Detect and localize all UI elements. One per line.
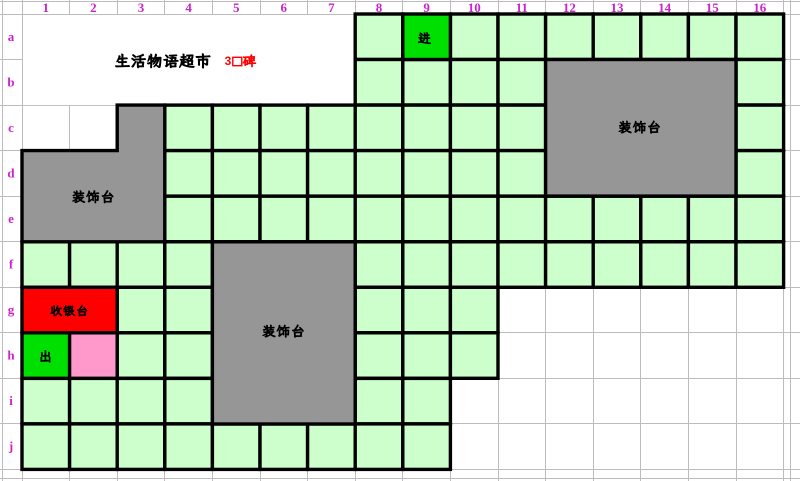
svg-text:12: 12 (563, 0, 576, 15)
svg-text:13: 13 (611, 0, 625, 15)
svg-text:4: 4 (185, 0, 192, 15)
svg-text:f: f (9, 257, 14, 272)
svg-text:3: 3 (225, 54, 232, 68)
svg-text:1: 1 (43, 0, 50, 15)
svg-text:c: c (8, 120, 14, 135)
svg-text:g: g (8, 302, 15, 317)
svg-text:d: d (7, 165, 15, 180)
svg-text:11: 11 (516, 0, 528, 15)
svg-text:h: h (7, 348, 15, 363)
svg-text:a: a (8, 29, 15, 44)
svg-text:9: 9 (423, 0, 430, 15)
svg-text:7: 7 (328, 0, 335, 15)
svg-text:i: i (9, 393, 13, 408)
svg-text:3: 3 (138, 0, 145, 15)
svg-text:10: 10 (468, 0, 481, 15)
svg-text:5: 5 (233, 0, 240, 15)
svg-text:8: 8 (376, 0, 383, 15)
svg-text:16: 16 (753, 0, 767, 15)
svg-text:j: j (8, 439, 13, 454)
svg-text:e: e (8, 211, 14, 226)
svg-text:15: 15 (706, 0, 720, 15)
svg-text:14: 14 (658, 0, 672, 15)
svg-text:6: 6 (281, 0, 288, 15)
svg-text:b: b (7, 74, 14, 89)
svg-text:2: 2 (90, 0, 97, 15)
